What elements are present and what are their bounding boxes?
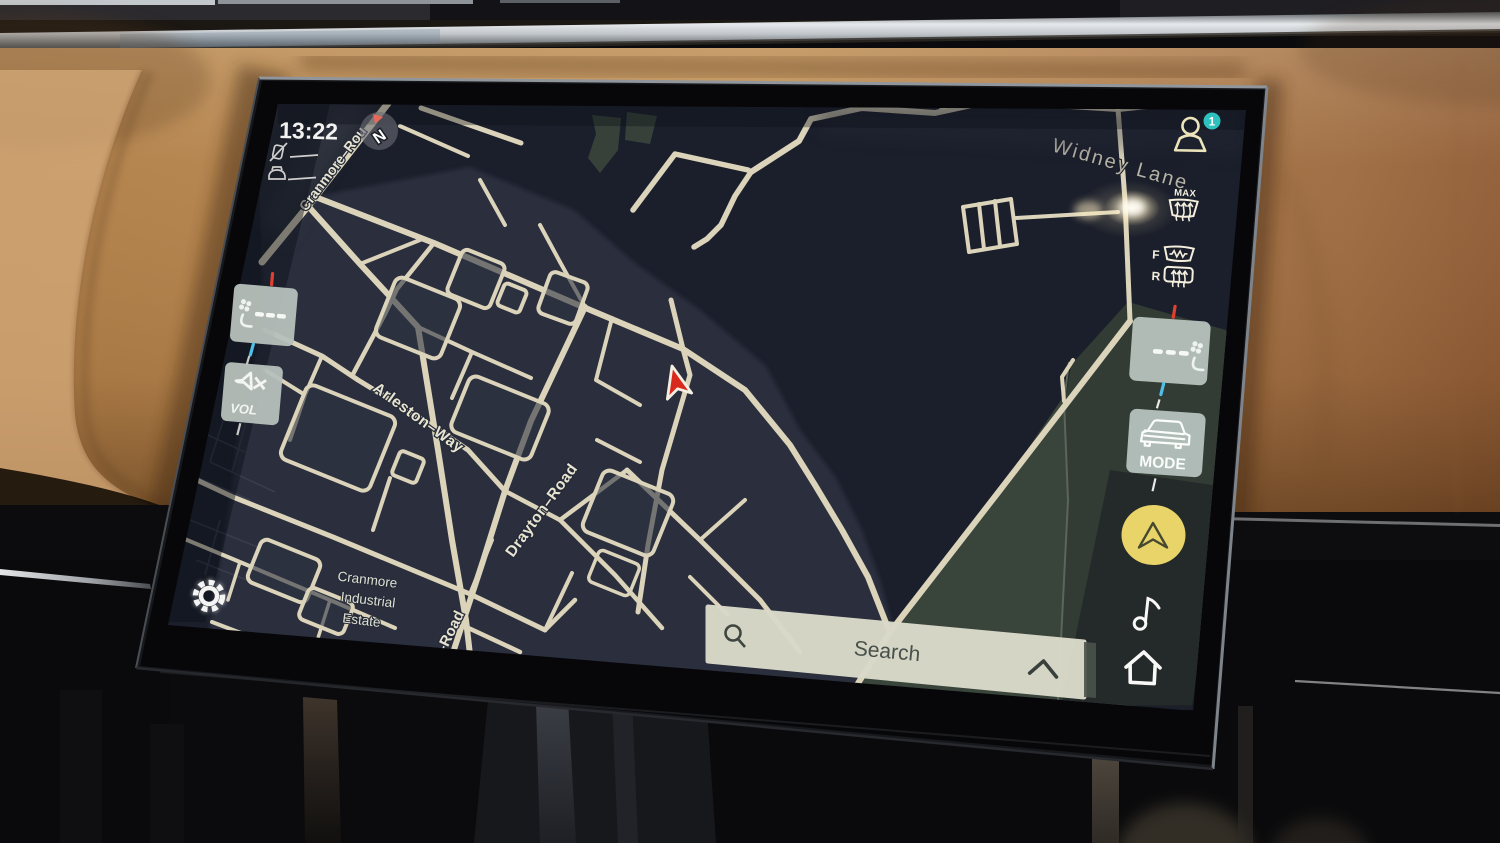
svg-text:MODE: MODE — [1139, 453, 1187, 473]
svg-text:1: 1 — [1209, 117, 1216, 129]
svg-text:MAX: MAX — [1174, 187, 1197, 199]
svg-text:13:22: 13:22 — [279, 117, 338, 145]
svg-text:VOL: VOL — [230, 400, 258, 417]
svg-text:F: F — [1152, 248, 1160, 262]
svg-text:R: R — [1151, 269, 1161, 283]
